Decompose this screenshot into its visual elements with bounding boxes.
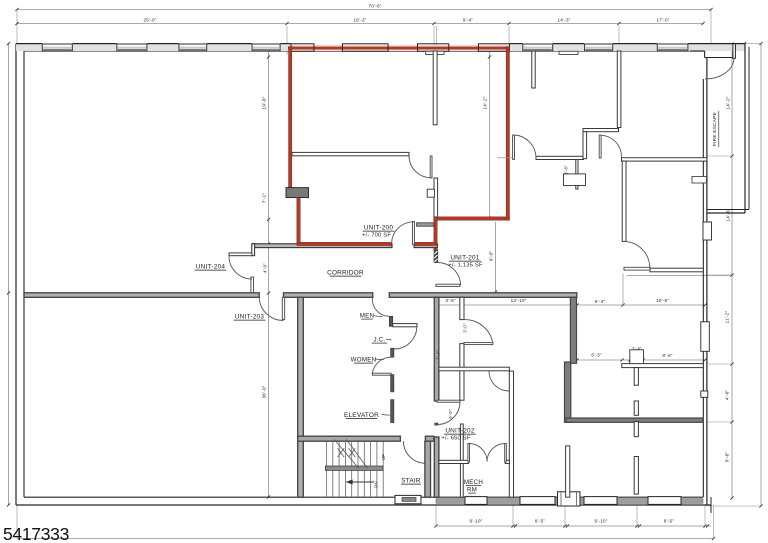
svg-text:8’-6”: 8’-6” — [662, 353, 672, 358]
svg-text:+/- 700 SF: +/- 700 SF — [362, 233, 391, 239]
svg-text:3’-0”: 3’-0” — [463, 323, 468, 333]
svg-text:UNIT-204: UNIT-204 — [196, 264, 226, 271]
svg-text:11’-2”: 11’-2” — [725, 310, 730, 323]
svg-text:UNIT-200: UNIT-200 — [364, 225, 394, 232]
svg-text:9’-6”: 9’-6” — [725, 452, 730, 462]
svg-text:J.C.: J.C. — [373, 337, 385, 344]
svg-text:FIRE ESCAPE: FIRE ESCAPE — [712, 112, 718, 146]
svg-text:4’-0”: 4’-0” — [263, 263, 268, 273]
svg-text:UNIT-203: UNIT-203 — [235, 314, 265, 321]
svg-text:CORRIDOR: CORRIDOR — [327, 270, 364, 277]
svg-text:DN: DN — [374, 481, 379, 487]
svg-text:+/- 650 SF: +/- 650 SF — [441, 436, 470, 442]
svg-text:9’-4”: 9’-4” — [463, 18, 473, 23]
svg-text:3’-8”: 3’-8” — [445, 298, 455, 303]
svg-text:9’-10”: 9’-10” — [470, 519, 483, 524]
svg-text:25’-0”: 25’-0” — [144, 18, 157, 23]
svg-text:8’-5”: 8’-5” — [535, 519, 545, 524]
svg-text:70’-6”: 70’-6” — [369, 4, 382, 9]
svg-text:14’-2”: 14’-2” — [483, 96, 488, 109]
svg-text:RM: RM — [467, 487, 477, 494]
svg-text:7’-1”: 7’-1” — [262, 193, 267, 203]
svg-text:UP: UP — [381, 454, 386, 460]
svg-text:+/- 1,135 SF: +/- 1,135 SF — [448, 263, 483, 269]
svg-text:9’-0”: 9’-0” — [489, 251, 494, 261]
svg-text:14’-3”: 14’-3” — [558, 18, 571, 23]
svg-text:13’-10”: 13’-10” — [511, 298, 527, 303]
svg-text:6’-3”: 6’-3” — [591, 353, 601, 358]
svg-text:MECH: MECH — [464, 479, 483, 486]
svg-text:WOMEN: WOMEN — [351, 357, 377, 364]
svg-text:9’-0”: 9’-0” — [448, 409, 453, 419]
svg-text:17’-0”: 17’-0” — [657, 18, 670, 23]
svg-text:UNIT-201: UNIT-201 — [450, 255, 480, 262]
svg-text:5417333: 5417333 — [3, 524, 69, 543]
svg-text:7’-4”: 7’-4” — [436, 350, 441, 360]
svg-text:4’-6”: 4’-6” — [725, 390, 730, 400]
svg-text:16’-3”: 16’-3” — [354, 18, 367, 23]
svg-text:ELEVATOR: ELEVATOR — [344, 412, 379, 419]
svg-text:9’-10”: 9’-10” — [595, 519, 608, 524]
svg-text:UNIT-202: UNIT-202 — [445, 428, 475, 435]
svg-text:MEN: MEN — [360, 313, 375, 320]
svg-text:10’-6”: 10’-6” — [656, 298, 669, 303]
svg-text:3’-8”: 3’-8” — [564, 165, 569, 175]
svg-text:14’-2”: 14’-2” — [726, 96, 731, 109]
svg-text:19’-8”: 19’-8” — [262, 96, 267, 109]
svg-text:36’-0”: 36’-0” — [262, 385, 267, 398]
svg-text:8’-5”: 8’-5” — [664, 519, 674, 524]
svg-text:14’-6”: 14’-6” — [726, 208, 731, 221]
svg-text:STAIR: STAIR — [401, 478, 421, 485]
svg-text:6’-4”: 6’-4” — [595, 299, 605, 304]
